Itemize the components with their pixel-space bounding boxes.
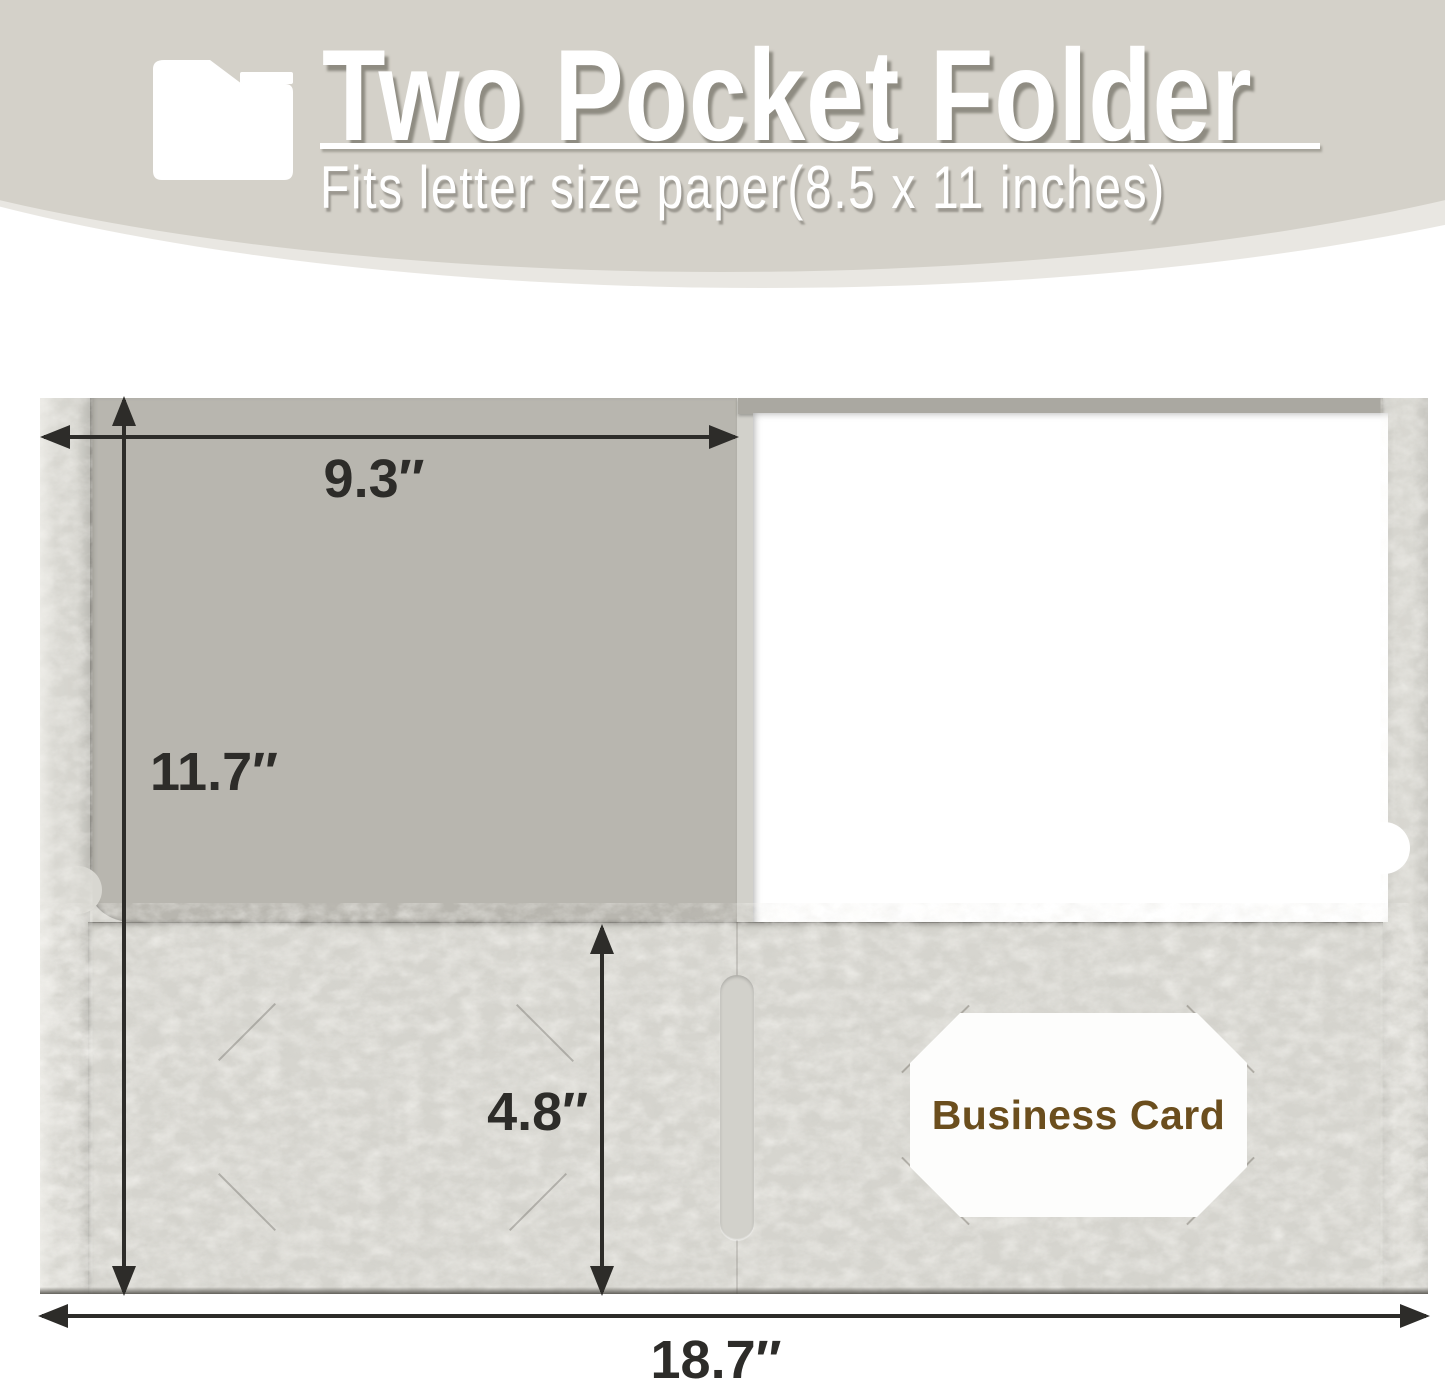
folder-spine-left bbox=[40, 398, 90, 1294]
page-subtitle: Fits letter size paper(8.5 x 11 inches) bbox=[320, 156, 1166, 219]
center-pen-slot bbox=[720, 975, 754, 1240]
arrow-head-left-icon bbox=[40, 425, 70, 449]
arrow-head-up-icon bbox=[590, 924, 614, 954]
arrow-head-right-icon bbox=[709, 425, 739, 449]
arrow-shaft bbox=[42, 1314, 1426, 1318]
dim-arrow-total-width bbox=[40, 1304, 1428, 1328]
letter-size-paper bbox=[753, 413, 1388, 922]
page-title: Two Pocket Folder bbox=[322, 30, 1252, 160]
arrow-head-up-icon bbox=[112, 396, 136, 426]
dim-label-folder-height: 11.7″ bbox=[150, 741, 278, 803]
folder-bottom-edge bbox=[40, 1287, 1428, 1294]
folder-inner-top-edge bbox=[738, 398, 1383, 414]
arrow-shaft bbox=[122, 400, 126, 1292]
arrow-head-left-icon bbox=[38, 1304, 68, 1328]
business-card-label: Business Card bbox=[932, 1092, 1226, 1139]
folder-icon bbox=[152, 60, 295, 182]
arrow-head-down-icon bbox=[112, 1266, 136, 1296]
dim-label-total-width: 18.7″ bbox=[616, 1329, 816, 1379]
arrow-shaft bbox=[44, 435, 735, 439]
product-diagram-page: Two Pocket Folder Fits letter size paper… bbox=[0, 0, 1445, 1379]
business-card-holder: Business Card bbox=[910, 1013, 1247, 1217]
arrow-head-right-icon bbox=[1400, 1304, 1430, 1328]
title-underline bbox=[320, 143, 1320, 149]
arrow-head-down-icon bbox=[590, 1266, 614, 1296]
dim-label-pocket-height: 4.8″ bbox=[418, 1081, 588, 1143]
thumb-notch-right bbox=[1358, 822, 1410, 874]
arrow-shaft bbox=[600, 928, 604, 1292]
dim-arrow-pocket-width bbox=[42, 425, 737, 449]
dim-arrow-pocket-height bbox=[590, 926, 614, 1294]
dim-label-pocket-width: 9.3″ bbox=[274, 448, 474, 510]
folder-diagram: Business Card bbox=[40, 398, 1428, 1294]
thumb-notch-left bbox=[54, 866, 102, 914]
dim-arrow-folder-height bbox=[112, 398, 136, 1294]
